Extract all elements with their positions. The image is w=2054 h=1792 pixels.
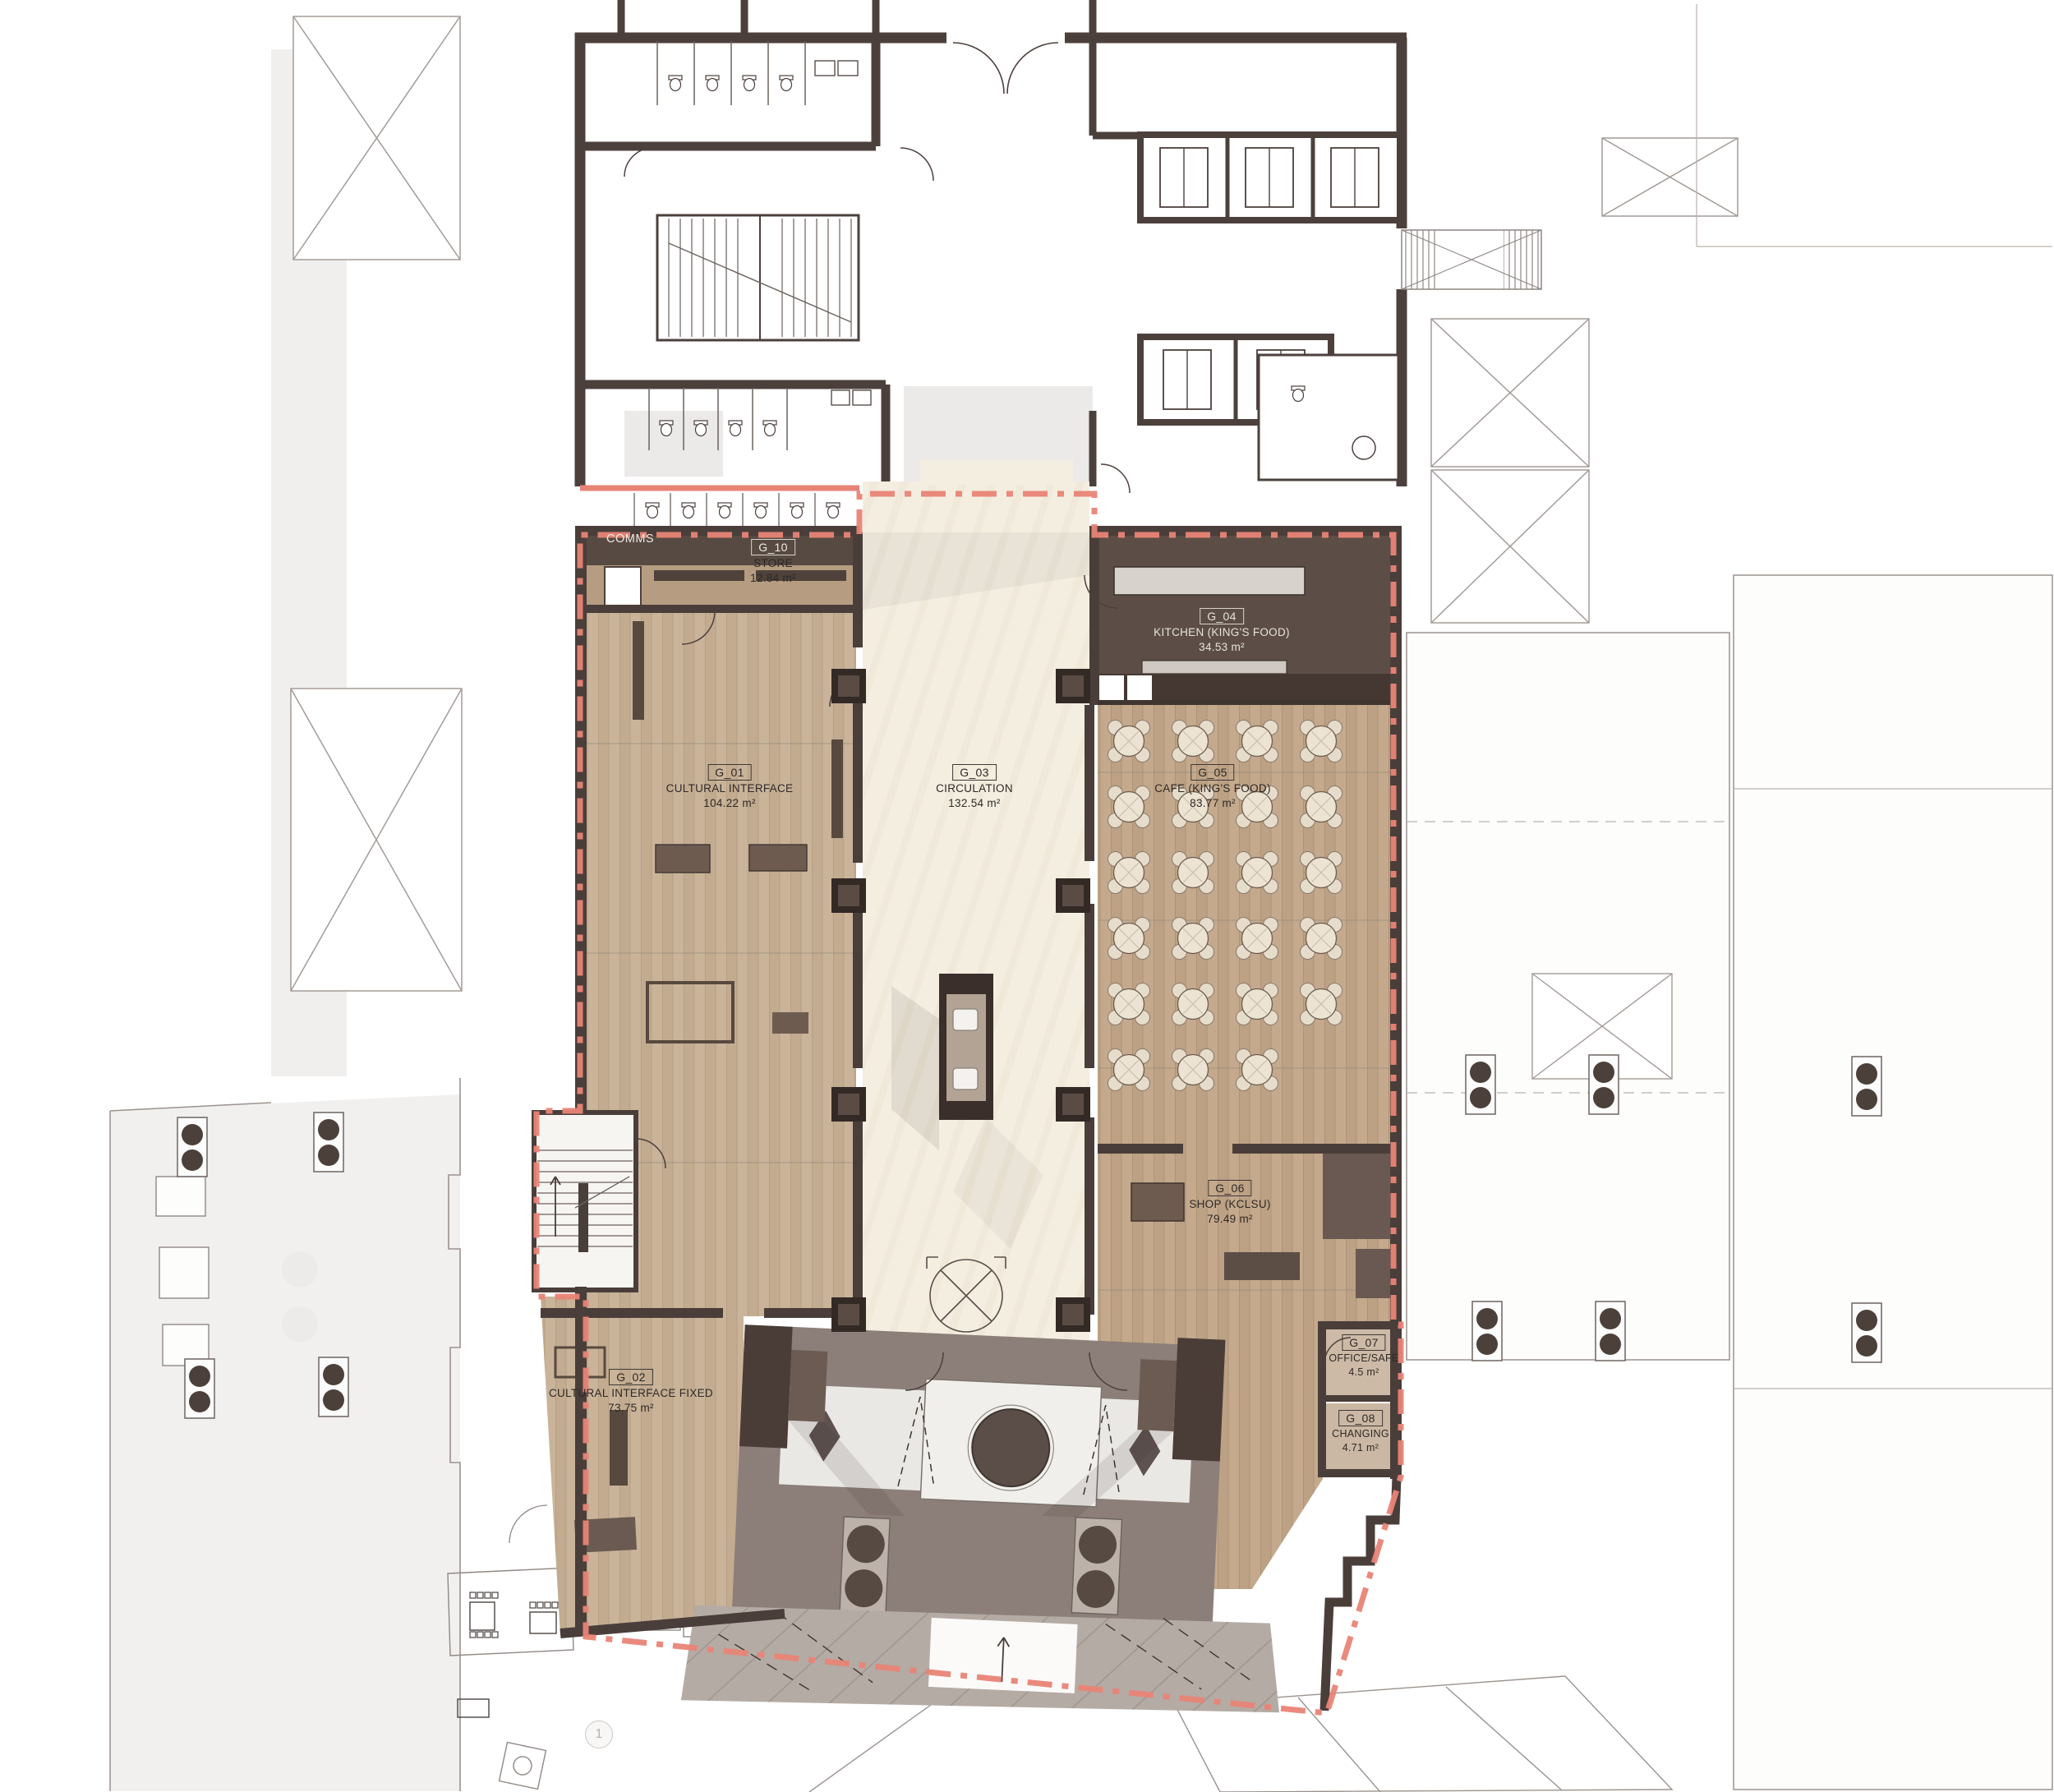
room-area: 73.75 m² (549, 1401, 713, 1416)
comms-label: COMMS (606, 532, 654, 546)
room-area: 4.71 m² (1332, 1441, 1389, 1455)
room-label-g01: G_01 CULTURAL INTERFACE 104.22 m² (666, 764, 794, 811)
room-label-g04: G_04 KITCHEN (KING'S FOOD) 34.53 m² (1154, 608, 1290, 655)
room-name: STORE (750, 556, 796, 571)
room-number: G_06 (1208, 1180, 1251, 1196)
room-name: KITCHEN (KING'S FOOD) (1154, 625, 1290, 640)
room-label-g06: G_06 SHOP (KCLSU) 79.49 m² (1189, 1180, 1270, 1227)
lift-bank-1 (1140, 135, 1400, 220)
room-number: G_07 (1342, 1334, 1385, 1351)
room-area: 132.54 m² (936, 796, 1013, 811)
room-name: CULTURAL INTERFACE (666, 781, 794, 796)
room-number: G_05 (1190, 764, 1234, 781)
room-number: G_04 (1200, 608, 1243, 624)
room-name: CHANGING (1332, 1427, 1389, 1441)
room-number: G_02 (609, 1369, 652, 1385)
grid-marker-1: 1 (585, 1721, 613, 1748)
ground-stair (534, 1113, 636, 1290)
room-area: 12.84 m² (750, 571, 796, 586)
upper-building (575, 0, 1541, 531)
room-number: G_01 (707, 764, 751, 781)
entrance-vestibule (681, 1316, 1296, 1728)
room-area: 104.22 m² (666, 796, 794, 811)
room-number: G_08 (1338, 1410, 1382, 1426)
room-name: CIRCULATION (936, 781, 1013, 796)
room-label-g02: G_02 CULTURAL INTERFACE FIXED 73.75 m² (549, 1369, 713, 1416)
room-area: 83.77 m² (1154, 796, 1270, 811)
room-name: OFFICE/SAFE (1329, 1352, 1398, 1366)
room-number: G_03 (952, 764, 996, 781)
floor-plan-canvas: G_01 CULTURAL INTERFACE 104.22 m² G_02 C… (0, 0, 2054, 1792)
room-label-g10: G_10 STORE 12.84 m² (750, 539, 796, 586)
room-area: 34.53 m² (1154, 640, 1290, 655)
room-number: G_10 (751, 539, 794, 555)
room-g03-floor (863, 481, 1089, 1352)
room-name: CAFE (KING'S FOOD) (1154, 781, 1270, 796)
footbridge (1402, 230, 1541, 289)
upper-stair (657, 215, 859, 340)
room-area: 79.49 m² (1189, 1212, 1270, 1227)
room-name: CULTURAL INTERFACE FIXED (549, 1386, 713, 1401)
floor-plan-drawing (0, 0, 2054, 1792)
room-label-g08: G_08 CHANGING 4.71 m² (1332, 1410, 1389, 1454)
comms-closet (605, 567, 641, 611)
room-area: 4.5 m² (1329, 1366, 1398, 1380)
room-label-g07: G_07 OFFICE/SAFE 4.5 m² (1329, 1334, 1398, 1379)
room-label-g03: G_03 CIRCULATION 132.54 m² (936, 764, 1013, 811)
reception-desk (939, 974, 993, 1120)
room-name: SHOP (KCLSU) (1189, 1197, 1270, 1212)
room-label-g05: G_05 CAFE (KING'S FOOD) 83.77 m² (1154, 764, 1270, 811)
